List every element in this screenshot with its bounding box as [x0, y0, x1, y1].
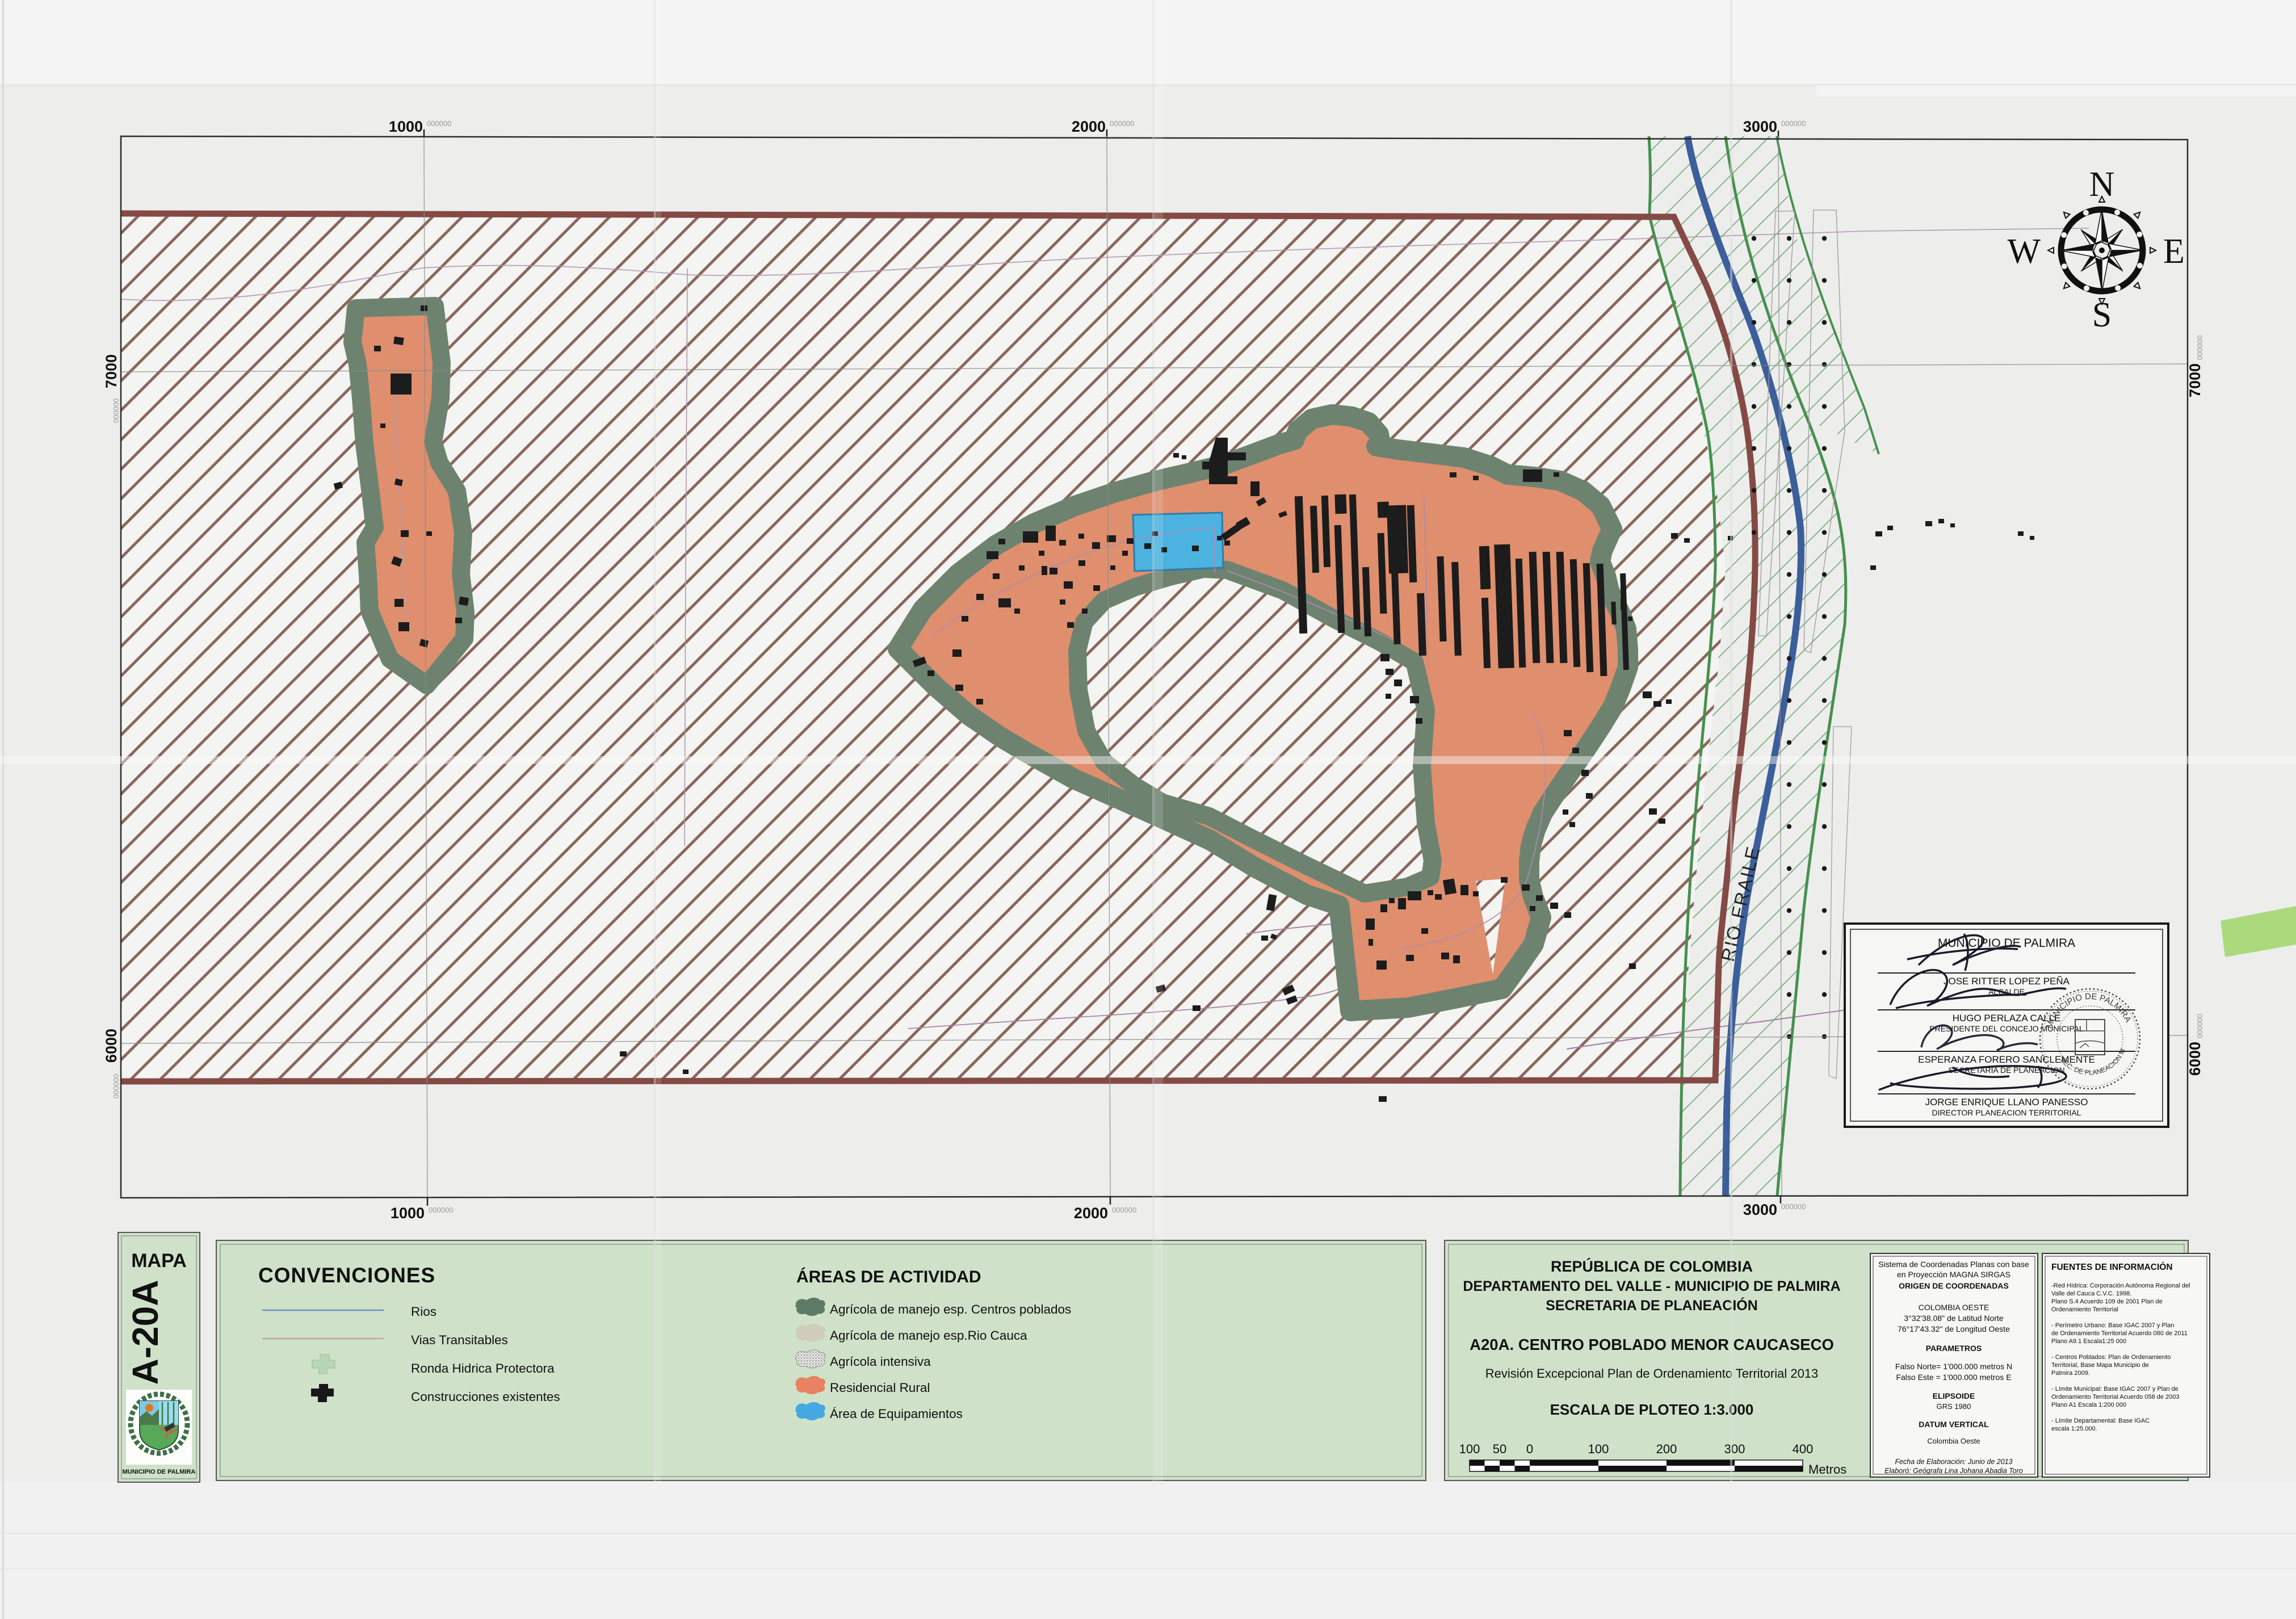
svg-text:Ordenamiento Territorial Acuer: Ordenamiento Territorial Acuerdo 058 de … — [2051, 1394, 2179, 1400]
svg-text:Plano A9.1 Escala1:25 000: Plano A9.1 Escala1:25 000 — [2051, 1338, 2126, 1345]
svg-text:000000: 000000 — [427, 119, 451, 128]
svg-text:1000: 1000 — [389, 118, 423, 135]
svg-text:- Límite Municipal: Base IGAC: - Límite Municipal: Base IGAC 2007 y Pla… — [2051, 1386, 2179, 1392]
svg-text:REPÚBLICA DE COLOMBIA: REPÚBLICA DE COLOMBIA — [1551, 1257, 1753, 1275]
svg-text:000000: 000000 — [2196, 335, 2204, 360]
svg-text:000000: 000000 — [112, 399, 120, 423]
svg-text:Revisión Excepcional Plan de O: Revisión Excepcional Plan de Ordenamient… — [1485, 1366, 1819, 1381]
svg-text:6000: 6000 — [103, 1029, 120, 1063]
svg-text:Colombia Oeste: Colombia Oeste — [1927, 1437, 1980, 1445]
svg-text:76°17'43.32" de Longitud Oeste: 76°17'43.32" de Longitud Oeste — [1898, 1324, 2010, 1333]
svg-text:Fecha de Elaboración: Junio d: Fecha de Elaboración: Junio de 2013 — [1895, 1458, 2012, 1466]
svg-text:Elaboró: Geógrafa Lina Johana: Elaboró: Geógrafa Lina Johana Abadia Tor… — [1884, 1467, 2023, 1475]
svg-text:Construcciones existentes: Construcciones existentes — [411, 1390, 560, 1404]
svg-text:Vias Transitables: Vias Transitables — [411, 1333, 508, 1347]
svg-text:DATUM VERTICAL: DATUM VERTICAL — [1919, 1420, 1989, 1429]
svg-text:- Perímetro Urbano: Base IGAC: - Perímetro Urbano: Base IGAC 2007 y Pla… — [2051, 1322, 2174, 1329]
svg-text:Valle del Cauca C.V.C. 1998.: Valle del Cauca C.V.C. 1998. — [2051, 1290, 2131, 1297]
svg-text:- Centros Poblados: Plan de Or: - Centros Poblados: Plan de Ordenamiento — [2051, 1354, 2171, 1361]
svg-text:Rios: Rios — [411, 1305, 436, 1319]
svg-text:Agrícola de manejo esp. Centro: Agrícola de manejo esp. Centros poblados — [830, 1302, 1071, 1316]
svg-text:000000: 000000 — [1112, 1206, 1136, 1214]
svg-text:3000: 3000 — [1743, 118, 1777, 135]
svg-text:DEPARTAMENTO DEL VALLE - MUNIC: DEPARTAMENTO DEL VALLE - MUNICIPIO DE PA… — [1463, 1278, 1840, 1294]
svg-text:de Ordenamiento Territorial Ac: de Ordenamiento Territorial Acuerdo 080 … — [2051, 1330, 2188, 1337]
svg-text:N: N — [2089, 165, 2115, 204]
svg-text:Falso Norte= 1'000.000 metros: Falso Norte= 1'000.000 metros N — [1895, 1362, 2012, 1371]
svg-text:HUGO PERLAZA CALLE: HUGO PERLAZA CALLE — [1953, 1013, 2061, 1024]
svg-text:DIRECTOR PLANEACION TERRITORIA: DIRECTOR PLANEACION TERRITORIAL — [1932, 1108, 2081, 1117]
svg-text:SECRETARIA DE PLANEACIÓN: SECRETARIA DE PLANEACIÓN — [1546, 1297, 1758, 1314]
svg-text:Palmira 2009.: Palmira 2009. — [2051, 1370, 2090, 1377]
svg-text:Metros: Metros — [1808, 1462, 1846, 1477]
svg-text:Agrícola de manejo esp.Rio Cau: Agrícola de manejo esp.Rio Cauca — [830, 1328, 1027, 1343]
svg-text:000000: 000000 — [1781, 119, 1806, 128]
svg-text:ÁREAS DE ACTIVIDAD: ÁREAS DE ACTIVIDAD — [796, 1267, 981, 1286]
svg-text:000000: 000000 — [112, 1074, 120, 1098]
svg-text:Sistema de Coordenadas Planas: Sistema de Coordenadas Planas con base — [1878, 1260, 2029, 1269]
svg-text:Ordenamiento Territorial: Ordenamiento Territorial — [2051, 1306, 2118, 1313]
svg-text:COLOMBIA OESTE: COLOMBIA OESTE — [1919, 1303, 1989, 1312]
svg-text:escala 1:25.000.: escala 1:25.000. — [2051, 1425, 2097, 1432]
svg-text:Ronda Hidrica Protectora: Ronda Hidrica Protectora — [411, 1361, 555, 1375]
svg-text:Plano S.4 Acuerdo 109 de 2001: Plano S.4 Acuerdo 109 de 2001 Plan de — [2051, 1298, 2163, 1305]
svg-text:ESCALA DE PLOTEO 1:3.000: ESCALA DE PLOTEO 1:3.000 — [1550, 1401, 1754, 1418]
svg-text:000000: 000000 — [1110, 119, 1134, 128]
svg-text:CONVENCIONES: CONVENCIONES — [258, 1264, 435, 1287]
svg-text:3°32'38.08" de Latitud Norte: 3°32'38.08" de Latitud Norte — [1904, 1314, 2003, 1323]
svg-text:W: W — [2007, 232, 2041, 271]
svg-text:2000: 2000 — [1072, 118, 1106, 135]
svg-text:- Límite Departamental: Base I: - Límite Departamental: Base IGAC — [2051, 1417, 2150, 1424]
svg-text:3000: 3000 — [1743, 1201, 1777, 1218]
svg-text:MAPA: MAPA — [131, 1250, 187, 1272]
svg-text:7000: 7000 — [103, 354, 120, 388]
svg-text:PARAMETROS: PARAMETROS — [1926, 1344, 1982, 1353]
svg-text:400: 400 — [1793, 1442, 1814, 1456]
svg-text:1000: 1000 — [391, 1205, 425, 1222]
svg-text:6000: 6000 — [2186, 1042, 2203, 1076]
svg-text:S: S — [2092, 296, 2112, 334]
svg-text:ORIGEN DE COORDENADAS: ORIGEN DE COORDENADAS — [1899, 1281, 2009, 1290]
svg-text:000000: 000000 — [2196, 1014, 2204, 1038]
svg-text:en Proyección MAGNA SIRGAS: en Proyección MAGNA SIRGAS — [1897, 1270, 2010, 1279]
svg-text:Territorial, Base Mapa Municip: Territorial, Base Mapa Municipio de — [2051, 1362, 2149, 1369]
svg-text:200: 200 — [1656, 1442, 1677, 1456]
svg-text:MUNICIPIO DE PALMIRA: MUNICIPIO DE PALMIRA — [123, 1469, 196, 1475]
svg-text:50: 50 — [1493, 1442, 1506, 1456]
svg-text:E: E — [2163, 232, 2185, 271]
svg-text:ELIPSOIDE: ELIPSOIDE — [1933, 1391, 1975, 1400]
svg-text:FUENTES DE INFORMACIÓN: FUENTES DE INFORMACIÓN — [2051, 1262, 2173, 1272]
svg-text:000000: 000000 — [1781, 1202, 1806, 1211]
svg-text:JORGE ENRIQUE LLANO PANESSO: JORGE ENRIQUE LLANO PANESSO — [1925, 1097, 2088, 1108]
svg-text:A20A. CENTRO POBLADO MENOR CAU: A20A. CENTRO POBLADO MENOR CAUCASECO — [1470, 1336, 1834, 1353]
svg-text:7000: 7000 — [2186, 363, 2203, 397]
svg-text:Área de Equipamientos: Área de Equipamientos — [830, 1407, 963, 1421]
svg-text:Falso Este = 1'000.000 metros: Falso Este = 1'000.000 metros E — [1896, 1373, 2011, 1382]
svg-text:0: 0 — [1526, 1442, 1533, 1456]
svg-text:100: 100 — [1588, 1442, 1609, 1456]
svg-text:100: 100 — [1459, 1442, 1480, 1456]
svg-text:GRS 1980: GRS 1980 — [1937, 1402, 1971, 1411]
svg-text:300: 300 — [1724, 1442, 1745, 1456]
svg-text:Plano A1 Escala 1:200 000: Plano A1 Escala 1:200 000 — [2051, 1402, 2126, 1408]
svg-text:JOSE RITTER LOPEZ PEÑA: JOSE RITTER LOPEZ PEÑA — [1944, 976, 2070, 987]
svg-text:Residencial Rural: Residencial Rural — [830, 1381, 930, 1395]
svg-text:2000: 2000 — [1074, 1205, 1108, 1222]
svg-text:-Red Hídrica: Corporación Autó: -Red Hídrica: Corporación Autónoma Regio… — [2051, 1282, 2190, 1289]
svg-text:Agrícola intensiva: Agrícola intensiva — [830, 1354, 931, 1369]
svg-text:A-20A: A-20A — [125, 1280, 166, 1385]
svg-text:000000: 000000 — [429, 1206, 453, 1214]
